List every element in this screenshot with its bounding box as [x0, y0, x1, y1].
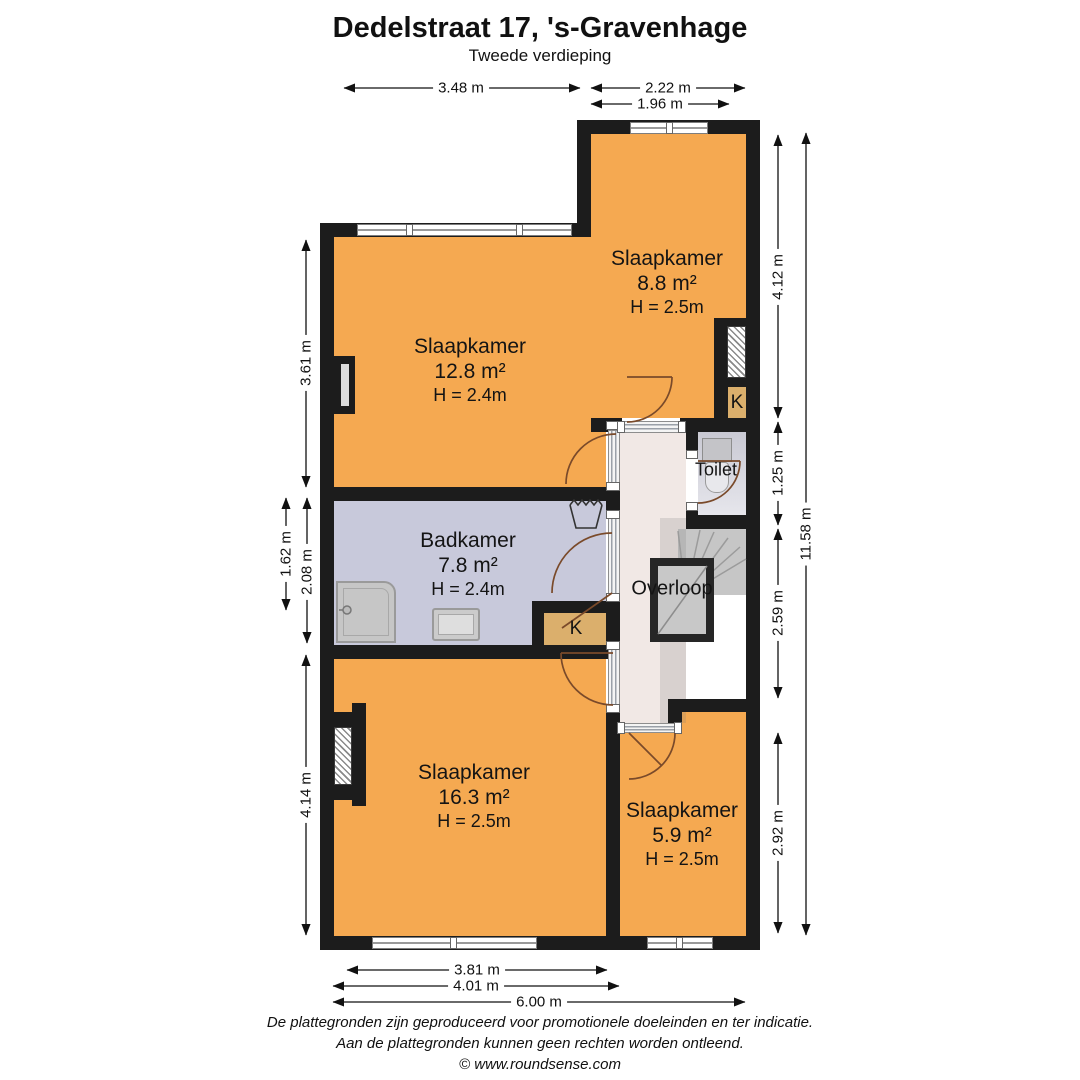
wall [606, 706, 620, 936]
wall [746, 120, 760, 950]
dim-label: 3.61 m [298, 335, 315, 391]
glazed-partition [622, 421, 680, 433]
door-jamb [606, 593, 620, 602]
wall [320, 487, 620, 501]
door-jamb [686, 450, 698, 459]
wall [714, 318, 760, 326]
glazed-partition [622, 723, 680, 733]
label-badkamer: Badkamer 7.8 m² H = 2.4m [420, 528, 516, 601]
footer-disclaimer: De plattegronden zijn geproduceerd voor … [0, 1012, 1080, 1075]
label-slaapkamer-5-9: Slaapkamer 5.9 m² H = 2.5m [626, 798, 738, 871]
wall [727, 378, 760, 387]
wall [686, 515, 760, 529]
dim-label: 2.92 m [770, 805, 787, 861]
hatched-flue [334, 727, 352, 785]
door-jamb [686, 502, 698, 511]
wall [680, 418, 746, 432]
label-slaapkamer-8-8: Slaapkamer 8.8 m² H = 2.5m [611, 246, 723, 319]
floorplan-canvas: Dedelstraat 17, 's-Gravenhage Tweede ver… [0, 0, 1080, 1080]
window-mullion [406, 224, 413, 236]
dim-label: 6.00 m [511, 994, 567, 1011]
glazed-door-strip [608, 517, 620, 595]
dim-label: 4.14 m [298, 767, 315, 823]
footer-line2: Aan de plattegronden kunnen geen rechten… [0, 1033, 1080, 1054]
door-jamb [678, 421, 686, 433]
page-subtitle: Tweede verdieping [0, 46, 1080, 66]
wall [532, 601, 620, 613]
door-jamb [674, 722, 682, 734]
chimney [352, 703, 366, 806]
label-closet-badkamer: K [570, 618, 583, 640]
door-jamb [617, 722, 625, 734]
hatched-flue [727, 326, 746, 378]
label-toilet: Toilet [695, 460, 737, 481]
wall [680, 699, 760, 712]
dim-label: 1.25 m [770, 445, 787, 501]
sink-basin [438, 614, 474, 635]
hall-stair-shadow [660, 518, 686, 723]
label-slaapkamer-12-8: Slaapkamer 12.8 m² H = 2.4m [414, 334, 526, 407]
footer-line1: De plattegronden zijn geproduceerd voor … [0, 1012, 1080, 1033]
dim-label: 1.96 m [632, 96, 688, 113]
room-slaapkamer-5-9-ext [682, 712, 746, 737]
wall [532, 601, 544, 659]
window-mullion [450, 937, 457, 949]
flue-niche-slot [341, 364, 349, 406]
window [357, 224, 572, 236]
dim-label: 2.22 m [640, 80, 696, 97]
dim-label: 11.58 m [798, 502, 815, 565]
door-jamb [606, 704, 620, 713]
chimney [334, 783, 352, 800]
dim-label: 4.12 m [770, 249, 787, 305]
wall [320, 645, 620, 659]
stair-void-lower [686, 595, 746, 699]
door-jamb [606, 482, 620, 491]
toilet-cistern [702, 438, 732, 462]
window-mullion [676, 937, 683, 949]
label-overloop: Overloop [631, 578, 712, 601]
label-slaapkamer-16-3: Slaapkamer 16.3 m² H = 2.5m [418, 760, 530, 833]
footer-copyright: © www.roundsense.com [0, 1054, 1080, 1075]
wall [714, 318, 728, 430]
dim-label: 2.59 m [770, 585, 787, 641]
page-title: Dedelstraat 17, 's-Gravenhage [0, 12, 1080, 45]
dim-label: 3.48 m [433, 80, 489, 97]
window-mullion [666, 122, 673, 134]
wall [320, 223, 334, 950]
label-closet-slaapkamer-8-8: K [731, 392, 744, 414]
dim-label: 2.08 m [299, 544, 316, 600]
dim-label: 3.81 m [449, 962, 505, 979]
wall [577, 120, 591, 237]
door-jamb [617, 421, 625, 433]
glazed-door-strip [608, 648, 620, 706]
dim-label: 4.01 m [448, 978, 504, 995]
glazed-door-strip [608, 430, 620, 484]
shower-tray [343, 588, 389, 636]
door-jamb [606, 641, 620, 650]
dim-label: 1.62 m [278, 526, 295, 582]
door-jamb [606, 510, 620, 519]
window-mullion [516, 224, 523, 236]
